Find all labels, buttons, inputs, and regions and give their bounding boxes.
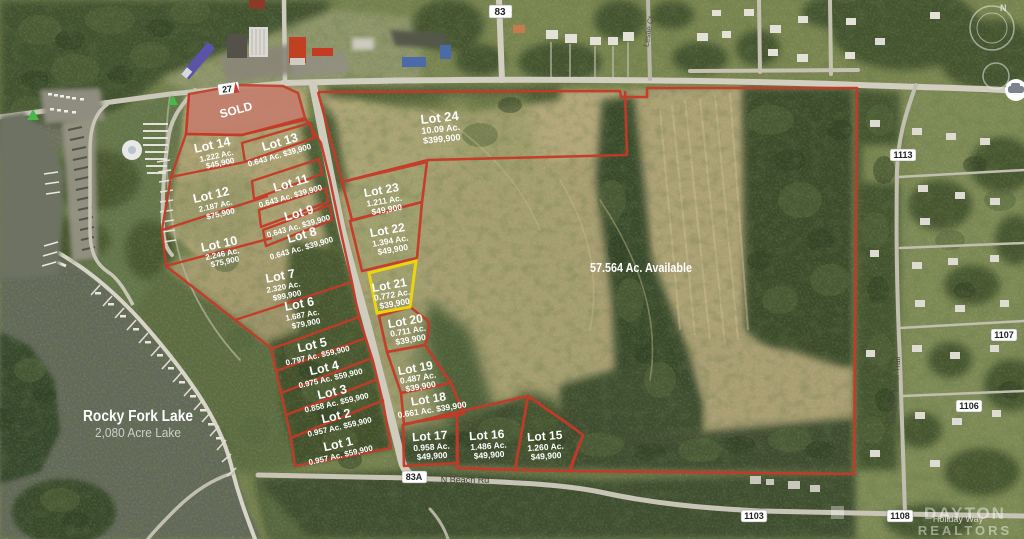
svg-text:1108: 1108 xyxy=(890,511,910,521)
svg-text:1103: 1103 xyxy=(744,511,764,521)
svg-text:N Beach Rd: N Beach Rd xyxy=(441,475,490,485)
svg-text:Rocky Fork Lake: Rocky Fork Lake xyxy=(83,408,193,425)
svg-text:1113: 1113 xyxy=(893,150,912,160)
svg-text:83: 83 xyxy=(494,7,506,18)
svg-text:1107: 1107 xyxy=(994,330,1014,340)
svg-text:57.564 Ac. Available: 57.564 Ac. Available xyxy=(590,260,692,275)
svg-text:1106: 1106 xyxy=(959,401,979,411)
svg-text:REALTORS: REALTORS xyxy=(918,523,1012,538)
svg-text:DAYTON: DAYTON xyxy=(924,504,1006,523)
svg-text:N: N xyxy=(1000,3,1007,13)
svg-text:27: 27 xyxy=(221,83,232,94)
svg-text:2,080 Acre Lake: 2,080 Acre Lake xyxy=(95,426,181,440)
svg-text:83A: 83A xyxy=(406,472,423,482)
